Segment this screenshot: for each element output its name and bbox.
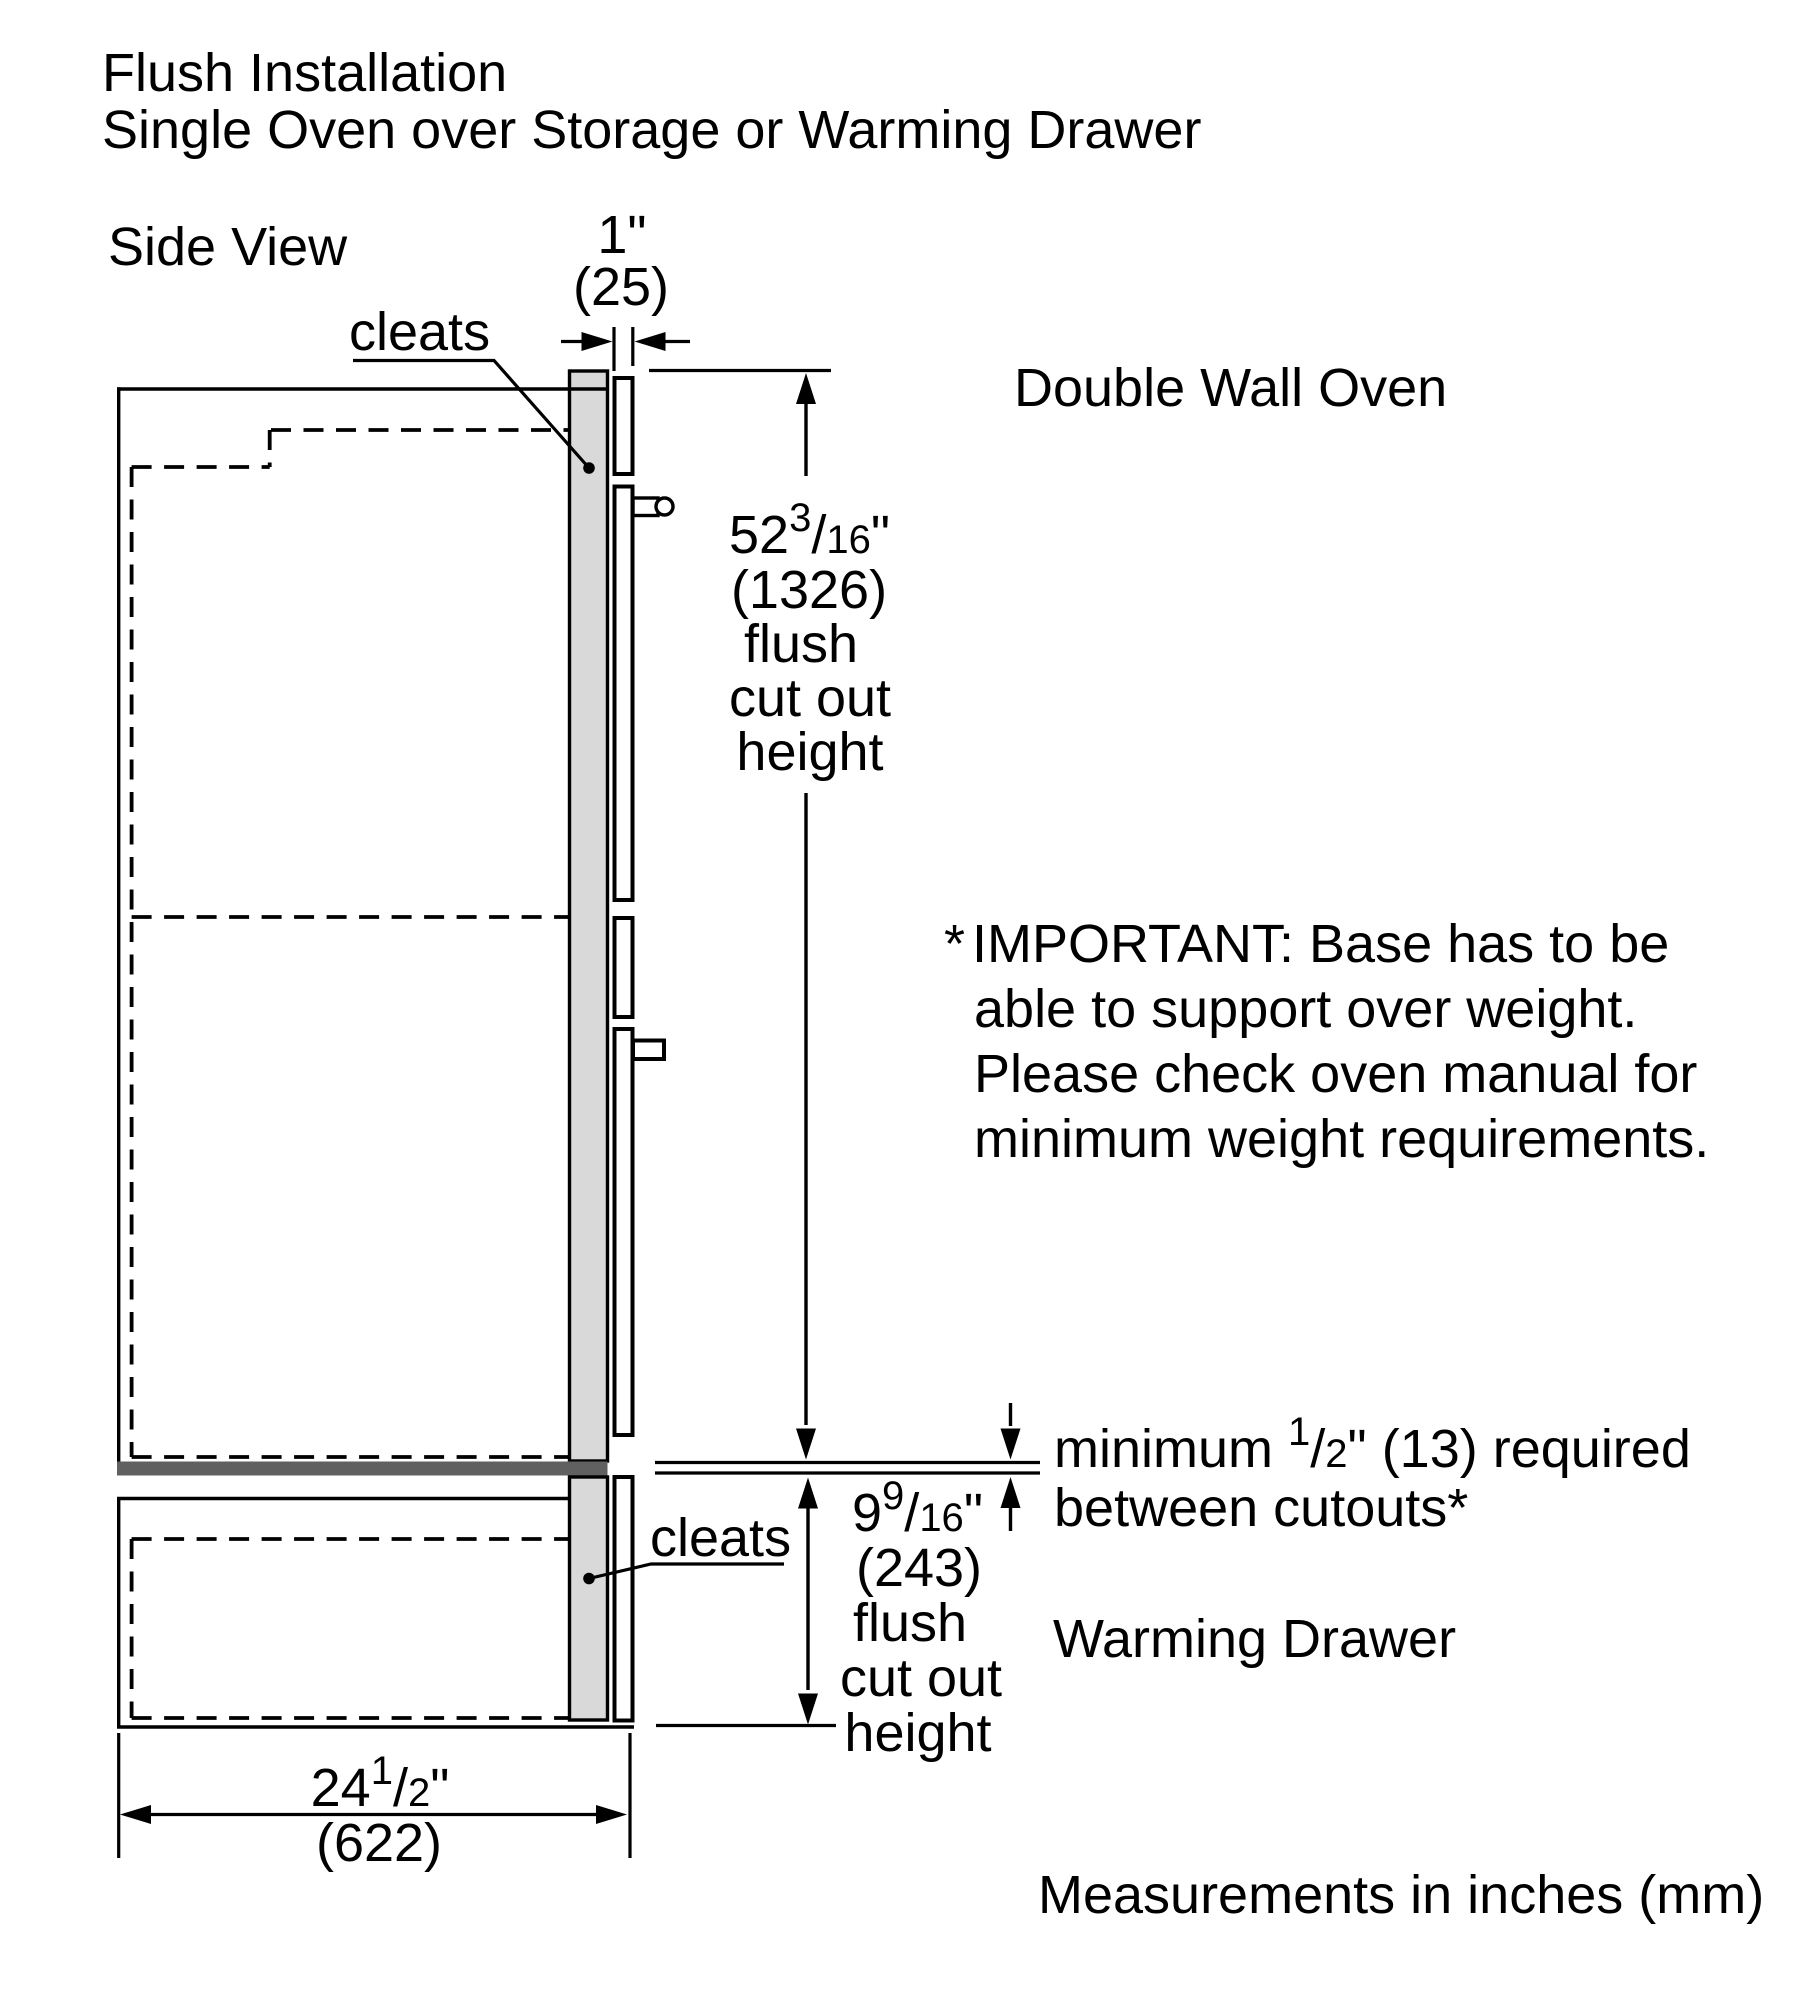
svg-text:cut out: cut out: [729, 668, 891, 728]
svg-text:(243): (243): [856, 1538, 982, 1598]
svg-text:able to support over weight.: able to support over weight.: [974, 979, 1637, 1039]
svg-text:height: height: [736, 722, 883, 782]
svg-text:(1326): (1326): [731, 560, 887, 620]
svg-text:cleats: cleats: [650, 1508, 791, 1568]
svg-text:between cutouts*: between cutouts*: [1054, 1478, 1468, 1538]
svg-text:Side View: Side View: [108, 217, 348, 277]
svg-text:Single Oven over Storage or Wa: Single Oven over Storage or Warming Draw…: [102, 100, 1201, 160]
svg-text:height: height: [844, 1703, 991, 1763]
svg-text:cut out: cut out: [840, 1648, 1002, 1708]
svg-text:flush: flush: [853, 1593, 967, 1653]
svg-text:*: *: [944, 914, 965, 974]
svg-text:Double Wall Oven: Double Wall Oven: [1014, 358, 1447, 418]
svg-text:Please check oven manual for: Please check oven manual for: [974, 1044, 1697, 1104]
svg-text:Measurements in inches (mm): Measurements in inches (mm): [1038, 1865, 1764, 1925]
svg-text:minimum weight requirements.: minimum weight requirements.: [974, 1109, 1709, 1169]
svg-text:minimum 1/2" (13) required: minimum 1/2" (13) required: [1054, 1410, 1691, 1479]
svg-text:(25): (25): [573, 257, 669, 317]
svg-text:cleats: cleats: [349, 302, 490, 362]
svg-text:(622): (622): [316, 1813, 442, 1873]
svg-text:99/16": 99/16": [852, 1474, 983, 1543]
svg-text:1": 1": [597, 205, 646, 265]
svg-text:Flush Installation: Flush Installation: [102, 43, 507, 103]
svg-text:Warming Drawer: Warming Drawer: [1053, 1609, 1456, 1669]
svg-text:IMPORTANT: Base has to be: IMPORTANT: Base has to be: [972, 914, 1669, 974]
svg-text:flush: flush: [744, 614, 858, 674]
